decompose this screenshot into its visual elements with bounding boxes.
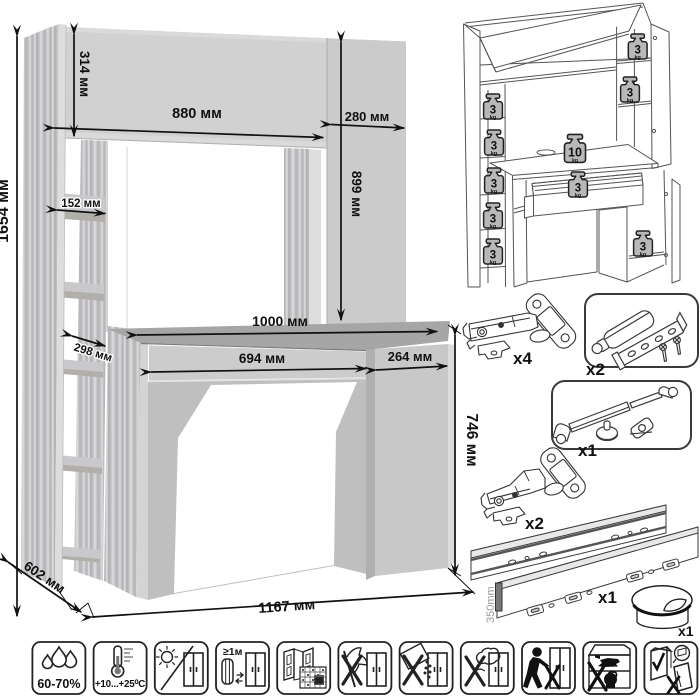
svg-text:899 мм: 899 мм	[349, 171, 364, 217]
svg-text:746 мм: 746 мм	[463, 413, 480, 466]
svg-text:880 мм: 880 мм	[172, 106, 222, 122]
svg-text:694 мм: 694 мм	[239, 351, 285, 366]
svg-text:+10...+25⁰C: +10...+25⁰C	[95, 679, 145, 690]
svg-text:350mm: 350mm	[485, 586, 497, 623]
svg-text:264 мм: 264 мм	[388, 349, 433, 364]
svg-text:x2: x2	[586, 360, 605, 379]
svg-text:280 мм: 280 мм	[345, 109, 390, 124]
svg-text:1654 мм: 1654 мм	[0, 179, 12, 243]
svg-text:x1: x1	[678, 623, 694, 639]
svg-text:x4: x4	[513, 349, 532, 368]
svg-text:25: 25	[315, 678, 323, 685]
svg-text:≥1м: ≥1м	[223, 646, 243, 658]
svg-text:152 мм: 152 мм	[61, 198, 100, 210]
svg-text:60-70%: 60-70%	[37, 677, 80, 691]
svg-text:314 мм: 314 мм	[77, 51, 92, 97]
svg-text:x1: x1	[598, 588, 617, 607]
svg-text:x2: x2	[525, 514, 544, 533]
svg-text:x1: x1	[578, 441, 597, 460]
svg-text:1167 мм: 1167 мм	[258, 597, 316, 617]
svg-text:1000 мм: 1000 мм	[252, 313, 308, 329]
